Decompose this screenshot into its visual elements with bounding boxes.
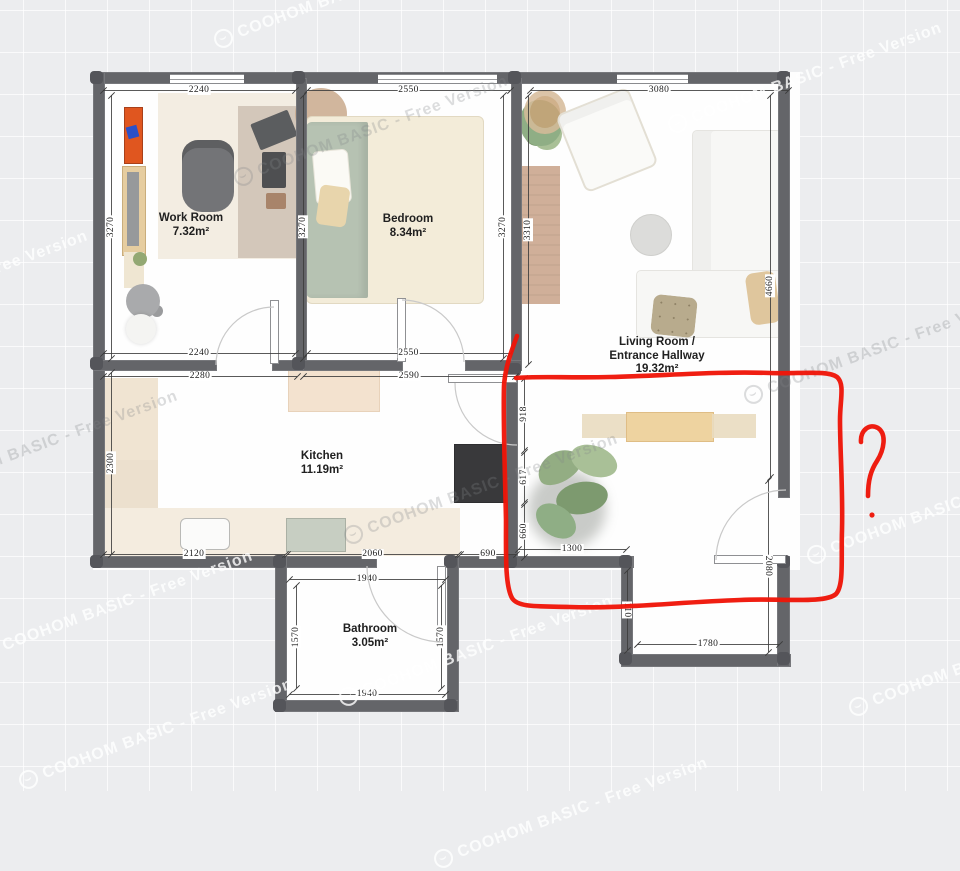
dimension-label: 1940 <box>356 689 379 699</box>
room-label-bathroom[interactable]: Bathroom3.05m² <box>343 623 397 650</box>
dimension-label: 1780 <box>697 639 720 649</box>
dimension-label: 617 <box>519 468 529 485</box>
coohom-badge-icon: ⌣ <box>431 846 455 870</box>
wall-corner <box>508 71 521 84</box>
dimension-label: 3270 <box>298 215 308 238</box>
annotation-question-dot <box>869 512 874 517</box>
coohom-badge-icon: ⌣ <box>804 542 828 566</box>
room-label-line: 7.32m² <box>159 226 223 240</box>
coffee-table[interactable] <box>630 214 672 256</box>
wall-corner <box>90 71 103 84</box>
room-label-line: Entrance Hallway <box>609 350 704 364</box>
room-label-line: 19.32m² <box>609 363 704 377</box>
room-label-kitchen[interactable]: Kitchen11.19m² <box>301 450 343 477</box>
wall[interactable] <box>778 72 790 498</box>
room-label-line: 11.19m² <box>301 464 343 478</box>
bed-pillow-beige[interactable] <box>315 184 350 228</box>
wall[interactable] <box>506 370 518 568</box>
floorplan-canvas: Work Room7.32m²Bedroom8.34m²Living Room … <box>0 0 960 791</box>
room-label-line: 8.34m² <box>383 227 433 241</box>
watermark-text: COOHOM BASIC - Free Version <box>235 0 490 42</box>
dimension-label: 1940 <box>356 574 379 584</box>
room-label-line: Work Room <box>159 212 223 226</box>
entry-bench[interactable] <box>626 412 714 442</box>
entry-mat-left[interactable] <box>582 414 626 438</box>
wall-corner <box>273 699 286 712</box>
window[interactable] <box>617 74 688 84</box>
room-label-line: 3.05m² <box>343 637 397 651</box>
window[interactable] <box>378 74 497 84</box>
dimension-label: 2550 <box>397 85 420 95</box>
entrance-door-leaf[interactable] <box>714 555 786 564</box>
wall-corner <box>777 652 790 665</box>
watermark-text: COOHOM BASIC - Free Version <box>0 227 90 335</box>
dimension-label: 918 <box>519 405 529 422</box>
coohom-badge-icon: ⌣ <box>0 639 1 663</box>
desk-box[interactable] <box>266 193 286 209</box>
dimension-label: 660 <box>519 522 529 539</box>
office-chair[interactable] <box>182 140 234 212</box>
wall[interactable] <box>447 556 634 568</box>
annotation-question-mark <box>861 426 884 496</box>
kitchen-counter-bottom[interactable] <box>104 508 460 556</box>
dimension-label: 4660 <box>765 275 775 298</box>
coohom-badge-icon: ⌣ <box>211 26 235 50</box>
dimension-label: 2280 <box>189 371 212 381</box>
wall[interactable] <box>511 78 522 368</box>
potted-plant-small[interactable] <box>133 252 147 266</box>
dimension-label: 3270 <box>498 215 508 238</box>
window[interactable] <box>170 74 244 84</box>
shelf-inner[interactable] <box>127 172 139 246</box>
room-label-line: Living Room / <box>609 336 704 350</box>
wall[interactable] <box>93 72 105 568</box>
wall[interactable] <box>93 360 217 371</box>
dimension-label: 2300 <box>106 452 116 475</box>
dimension-label: 1570 <box>291 625 301 648</box>
kitchen-stove[interactable] <box>286 518 346 552</box>
watermark-text: COOHOM BASIC - Free Version <box>828 450 960 558</box>
dimension-label: 3080 <box>648 85 671 95</box>
dimension-label: 110 <box>622 601 632 618</box>
wall[interactable] <box>777 556 790 667</box>
wall-corner <box>292 71 305 84</box>
wall-corner <box>504 555 517 568</box>
dimension-label: 3310 <box>523 218 533 241</box>
wall[interactable] <box>303 360 403 371</box>
dimension-label: 2550 <box>397 348 420 358</box>
wall[interactable] <box>93 556 377 568</box>
room-label-line: Kitchen <box>301 450 343 464</box>
room-label-living-room[interactable]: Living Room /Entrance Hallway19.32m² <box>609 336 704 377</box>
dimension-label: 2240 <box>188 85 211 95</box>
watermark-text: COOHOM BASIC - Free Version <box>455 754 710 862</box>
kitchen-sink[interactable] <box>180 518 230 550</box>
dimension-label: 1300 <box>561 544 584 554</box>
dimension-label: 2060 <box>361 549 384 559</box>
coohom-badge-icon: ⌣ <box>846 694 870 718</box>
floor-lamp[interactable] <box>126 284 160 318</box>
dimension-label: 2080 <box>763 555 773 578</box>
wall-corner <box>777 71 790 84</box>
dimension-label: 2120 <box>183 549 206 559</box>
watermark: ⌣COOHOM BASIC - Free Version <box>16 674 295 791</box>
wall-corner <box>90 357 103 370</box>
watermark: ⌣COOHOM BASIC - Free Version <box>804 449 960 566</box>
desk-monitor[interactable] <box>262 152 286 188</box>
kitchen-tall-cabinet[interactable] <box>288 368 380 412</box>
wall-corner <box>444 699 457 712</box>
room-label-bedroom[interactable]: Bedroom8.34m² <box>383 213 433 240</box>
wall[interactable] <box>275 556 287 712</box>
coohom-badge-icon: ⌣ <box>16 767 40 791</box>
work-room-door-leaf[interactable] <box>270 300 279 364</box>
watermark-text: COOHOM BASIC - Free Version <box>40 675 295 783</box>
watermark: ⌣COOHOM BASIC - Free Version <box>211 0 490 51</box>
watermark: ⌣COOHOM BASIC - Free Version <box>431 753 710 870</box>
wall[interactable] <box>275 700 459 712</box>
entry-mat-right[interactable] <box>712 414 756 438</box>
wall-corner <box>619 652 632 665</box>
watermark: ⌣COOHOM BASIC - Free Version <box>846 601 960 718</box>
dimension-label: 1570 <box>436 625 446 648</box>
dimension-label: 2590 <box>398 371 421 381</box>
dimension-label: 3270 <box>106 215 116 238</box>
floor-vase[interactable] <box>126 314 156 344</box>
sofa-pillow-pattern[interactable] <box>650 294 698 338</box>
room-label-work-room[interactable]: Work Room7.32m² <box>159 212 223 239</box>
dimension-label: 2240 <box>188 348 211 358</box>
room-label-line: Bathroom <box>343 623 397 637</box>
watermark-text: COOHOM BASIC - Free Version <box>870 602 960 710</box>
watermark: ⌣COOHOM BASIC - Free Version <box>0 226 91 343</box>
wall[interactable] <box>447 556 459 712</box>
room-label-line: Bedroom <box>383 213 433 227</box>
dimension-label: 690 <box>479 549 496 559</box>
kitchen-counter-left[interactable] <box>104 378 158 462</box>
